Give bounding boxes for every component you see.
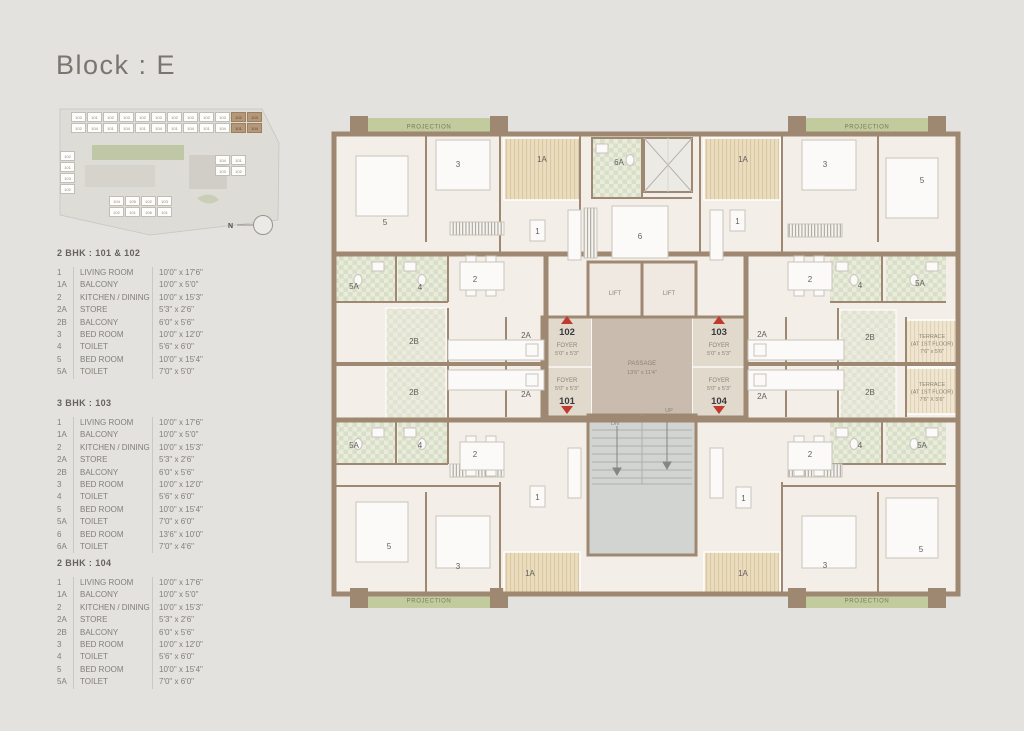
sofa — [568, 210, 581, 260]
keyplan-unit: 104 — [247, 123, 262, 133]
keyplan-unit: 104 — [87, 123, 102, 133]
legend-cell: 10'0" x 15'3" — [152, 442, 203, 454]
floor-plan-page: Block : E N 1031011021031021031021031021… — [0, 0, 1024, 731]
legend-row: 6ATOILET7'0" x 4'6" — [57, 541, 292, 553]
legend-row: 2ASTORE5'3" x 2'6" — [57, 614, 292, 626]
legend-cell: 5A — [57, 516, 73, 528]
stairs-dn-label: DN — [611, 421, 619, 427]
duct-shaft — [644, 138, 692, 192]
keyplan-unit: 102 — [60, 184, 75, 194]
legend-cell: 10'0" x 12'0" — [152, 479, 203, 491]
room-label: 1 — [535, 227, 540, 236]
room-label: 1 — [735, 217, 740, 226]
foyer-label: FOYER — [709, 378, 730, 384]
legend-cell: 5'3" x 2'6" — [152, 454, 194, 466]
legend-row: 3BED ROOM10'0" x 12'0" — [57, 329, 292, 341]
legend-cell: BED ROOM — [73, 329, 152, 341]
north-label: N — [228, 223, 233, 230]
bed — [356, 502, 408, 562]
legend-cell: 3 — [57, 479, 73, 491]
legend-rows: 1LIVING ROOM10'0" x 17'6"1ABALCONY10'0" … — [57, 577, 292, 689]
keyplan-unit: 101 — [60, 162, 75, 172]
keyplan-unit: 104 — [183, 123, 198, 133]
keyplan-unit: 101 — [125, 207, 140, 217]
room-label: 4 — [418, 441, 423, 450]
legend-cell: 10'0" x 15'3" — [152, 292, 203, 304]
room-label: 3 — [823, 160, 828, 169]
legend-cell: STORE — [73, 454, 152, 466]
toilet-5a — [336, 422, 396, 464]
legend-cell: 2B — [57, 627, 73, 639]
keyplan-cluster-left: 102101103102 — [60, 151, 76, 194]
keyplan-unit: 102 — [231, 166, 246, 176]
keyplan-cluster-right: 104101103102 — [215, 155, 249, 176]
passage — [592, 317, 692, 417]
legend-row: 2BBALCONY6'0" x 5'6" — [57, 317, 292, 329]
foyer-size: 5'0" x 5'3" — [555, 386, 579, 392]
room-label: 2B — [409, 388, 419, 397]
legend-cell: TOILET — [73, 651, 152, 663]
legend-cell: 7'0" x 6'0" — [152, 676, 194, 688]
projection-label: PROJECTION — [845, 125, 890, 131]
keyplan-unit: 106 — [141, 207, 156, 217]
keyplan-unit: 104 — [109, 196, 124, 206]
legend-cell: TOILET — [73, 516, 152, 528]
keyplan-unit: 101 — [199, 123, 214, 133]
legend-cell: 13'6" x 10'0" — [152, 529, 203, 541]
legend-row: 5BED ROOM10'0" x 15'4" — [57, 504, 292, 516]
legend-cell: 1 — [57, 417, 73, 429]
legend-cell: 2 — [57, 292, 73, 304]
keyplan-unit: 103 — [247, 112, 262, 122]
legend-cell: 5'6" x 6'0" — [152, 341, 194, 353]
legend-row: 5BED ROOM10'0" x 15'4" — [57, 354, 292, 366]
keyplan-unit: 103 — [151, 112, 166, 122]
legend-cell: BALCONY — [73, 279, 152, 291]
legend-row: 1LIVING ROOM10'0" x 17'6" — [57, 267, 292, 279]
keyplan-unit: 104 — [119, 123, 134, 133]
site-key-plan: N 103101102103102103102103102103102103 1… — [57, 103, 289, 251]
foyer-label: FOYER — [709, 343, 730, 349]
bed — [436, 140, 490, 190]
legend-cell: TOILET — [73, 676, 152, 688]
legend-row: 3BED ROOM10'0" x 12'0" — [57, 639, 292, 651]
legend-cell: 6'0" x 5'6" — [152, 627, 194, 639]
sofa — [710, 448, 723, 498]
unit-number-103: 103 — [711, 327, 727, 338]
legend-cell: 7'0" x 6'0" — [152, 516, 194, 528]
legend-row: 4TOILET5'6" x 6'0" — [57, 651, 292, 663]
legend-cell: KITCHEN / DINING — [73, 292, 152, 304]
keyplan-unit: 103 — [71, 112, 86, 122]
keyplan-unit: 104 — [215, 123, 230, 133]
keyplan-cluster-bottom: 104105102103102101106101 — [109, 196, 175, 217]
legend-row: 5ATOILET7'0" x 6'0" — [57, 516, 292, 528]
floor-plan: PROJECTION PROJECTION PROJECTION PROJECT… — [330, 112, 962, 612]
keyplan-unit: 102 — [71, 123, 86, 133]
foyer-size: 5'0" x 5'3" — [555, 351, 579, 357]
projection-label: PROJECTION — [407, 599, 452, 605]
site-block — [85, 165, 155, 187]
legend-rows: 1LIVING ROOM10'0" x 17'6"1ABALCONY10'0" … — [57, 417, 292, 553]
legend-row: 6BED ROOM13'6" x 10'0" — [57, 529, 292, 541]
room-label: 2A — [757, 330, 767, 339]
legend-title: 2 BHK : 104 — [57, 558, 292, 568]
legend-cell: 10'0" x 17'6" — [152, 577, 203, 589]
legend-cell: 10'0" x 15'4" — [152, 504, 203, 516]
balcony-1a — [504, 552, 580, 594]
page-title: Block : E — [56, 50, 176, 81]
room-label: 5 — [919, 545, 924, 554]
keyplan-unit: 102 — [141, 196, 156, 206]
legend-cell: BED ROOM — [73, 504, 152, 516]
lift-label: LIFT — [663, 291, 676, 297]
room-label: 1A — [537, 155, 547, 164]
legend-cell: BED ROOM — [73, 479, 152, 491]
legend-row: 5ATOILET7'0" x 5'0" — [57, 366, 292, 378]
legend-cell: 6'0" x 5'6" — [152, 467, 194, 479]
legend-cell: BED ROOM — [73, 639, 152, 651]
toilet-5a — [334, 254, 396, 302]
room-label: 6A — [614, 158, 624, 167]
foyer-label: FOYER — [557, 378, 578, 384]
keyplan-unit: 103 — [215, 166, 230, 176]
legend-cell: 10'0" x 5'0" — [152, 589, 198, 601]
room-label: 2 — [473, 275, 478, 284]
room-label: 2A — [757, 392, 767, 401]
legend-cell: 5'3" x 2'6" — [152, 614, 194, 626]
keyplan-unit: 102 — [135, 112, 150, 122]
balcony-1a — [504, 138, 580, 200]
lift-shaft — [588, 262, 642, 317]
legend-cell: 6A — [57, 541, 73, 553]
legend-cell: 5 — [57, 354, 73, 366]
stairs-up-label: UP — [665, 408, 673, 414]
bed — [356, 156, 408, 216]
terrace-floor-note: (AT 1ST FLOOR) — [911, 342, 953, 348]
legend-cell: 2 — [57, 602, 73, 614]
legend-row: 4TOILET5'6" x 6'0" — [57, 491, 292, 503]
room-label: 6 — [638, 232, 643, 241]
keyplan-unit: 101 — [87, 112, 102, 122]
legend-cell: 10'0" x 15'4" — [152, 664, 203, 676]
legend-cell: LIVING ROOM — [73, 267, 152, 279]
room-label: 1 — [741, 494, 746, 503]
room-label: 2B — [865, 333, 875, 342]
staircase — [588, 415, 696, 555]
legend-cell: 4 — [57, 341, 73, 353]
legend-cell: 7'0" x 4'6" — [152, 541, 194, 553]
room-label: 2 — [808, 275, 813, 284]
legend-cell: 5'3" x 2'6" — [152, 304, 194, 316]
legend-row: 1LIVING ROOM10'0" x 17'6" — [57, 577, 292, 589]
room-label: 1A — [738, 569, 748, 578]
legend-row: 3BED ROOM10'0" x 12'0" — [57, 479, 292, 491]
keyplan-unit: 102 — [231, 112, 246, 122]
legend-cell: 10'0" x 12'0" — [152, 639, 203, 651]
legend-cell: TOILET — [73, 491, 152, 503]
keyplan-strip-row1: 103101102103102103102103102103102103 — [71, 112, 262, 122]
legend-row: 2KITCHEN / DINING10'0" x 15'3" — [57, 442, 292, 454]
balcony-2b — [386, 308, 446, 364]
legend-cell: BED ROOM — [73, 529, 152, 541]
legend-cell: 1 — [57, 577, 73, 589]
legend-cell: 10'0" x 12'0" — [152, 329, 203, 341]
legend-cell: 10'0" x 17'6" — [152, 267, 203, 279]
bed — [802, 516, 856, 568]
foyer-size: 5'0" x 5'3" — [707, 351, 731, 357]
terrace-floor-note: (AT 1ST FLOOR) — [911, 390, 953, 396]
legend-cell: BALCONY — [73, 589, 152, 601]
room-label: 2B — [865, 388, 875, 397]
legend-cell: 7'0" x 5'0" — [152, 366, 194, 378]
room-label: 2B — [409, 337, 419, 346]
legend-cell: STORE — [73, 614, 152, 626]
keyplan-unit: 103 — [215, 112, 230, 122]
unit-number-101: 101 — [559, 396, 576, 407]
legend-row: 5ATOILET7'0" x 6'0" — [57, 676, 292, 688]
legend-cell: 5'6" x 6'0" — [152, 491, 194, 503]
passage-size: 13'6" x 11'4" — [627, 370, 657, 376]
legend-row: 1LIVING ROOM10'0" x 17'6" — [57, 417, 292, 429]
keyplan-unit: 104 — [215, 155, 230, 165]
keyplan-unit: 104 — [151, 123, 166, 133]
room-label: 5 — [387, 542, 392, 551]
legend-title: 3 BHK : 103 — [57, 398, 292, 408]
legend-3bhk-103: 3 BHK : 103 1LIVING ROOM10'0" x 17'6"1AB… — [57, 398, 292, 553]
terrace-size: 7'6" x 5'6" — [920, 349, 944, 355]
legend-row: 2KITCHEN / DINING10'0" x 15'3" — [57, 602, 292, 614]
legend-cell: 10'0" x 15'3" — [152, 602, 203, 614]
passage-label: PASSAGE — [628, 361, 656, 367]
legend-cell: KITCHEN / DINING — [73, 442, 152, 454]
legend-2bhk-101-102: 2 BHK : 101 & 102 1LIVING ROOM10'0" x 17… — [57, 248, 292, 379]
legend-row: 1ABALCONY10'0" x 5'0" — [57, 429, 292, 441]
legend-rows: 1LIVING ROOM10'0" x 17'6"1ABALCONY10'0" … — [57, 267, 292, 379]
legend-row: 1ABALCONY10'0" x 5'0" — [57, 279, 292, 291]
room-label: 4 — [858, 281, 863, 290]
keyplan-unit: 103 — [183, 112, 198, 122]
legend-row: 2KITCHEN / DINING10'0" x 15'3" — [57, 292, 292, 304]
lift-label: LIFT — [609, 291, 622, 297]
legend-cell: TOILET — [73, 541, 152, 553]
legend-title: 2 BHK : 101 & 102 — [57, 248, 292, 258]
legend-cell: 4 — [57, 651, 73, 663]
unit-number-102: 102 — [559, 327, 575, 338]
keyplan-unit: 102 — [109, 207, 124, 217]
bed — [436, 516, 490, 568]
legend-row: 2ASTORE5'3" x 2'6" — [57, 304, 292, 316]
sofa — [710, 210, 723, 260]
legend-row: 2BBALCONY6'0" x 5'6" — [57, 467, 292, 479]
keyplan-unit: 105 — [125, 196, 140, 206]
legend-cell: 4 — [57, 491, 73, 503]
legend-cell: 5 — [57, 504, 73, 516]
legend-cell: 3 — [57, 329, 73, 341]
legend-cell: STORE — [73, 304, 152, 316]
legend-cell: BALCONY — [73, 467, 152, 479]
legend-2bhk-104: 2 BHK : 104 1LIVING ROOM10'0" x 17'6"1AB… — [57, 558, 292, 689]
keyplan-unit: 102 — [167, 112, 182, 122]
legend-cell: 3 — [57, 639, 73, 651]
legend-cell: 2A — [57, 304, 73, 316]
foyer-label: FOYER — [557, 343, 578, 349]
legend-cell: 5A — [57, 676, 73, 688]
legend-cell: 6'0" x 5'6" — [152, 317, 194, 329]
legend-row: 2BBALCONY6'0" x 5'6" — [57, 627, 292, 639]
legend-cell: 5A — [57, 366, 73, 378]
projection-label: PROJECTION — [407, 125, 452, 131]
legend-cell: BED ROOM — [73, 354, 152, 366]
bed — [886, 498, 938, 558]
legend-cell: KITCHEN / DINING — [73, 602, 152, 614]
legend-cell: 6 — [57, 529, 73, 541]
terrace-size: 7'6" X 5'6" — [920, 397, 945, 403]
room-label: 5 — [920, 176, 925, 185]
legend-cell: 1A — [57, 279, 73, 291]
wardrobe — [788, 224, 842, 237]
room-label: 2A — [521, 390, 531, 399]
room-label: 3 — [823, 561, 828, 570]
foyer-size: 5'0" x 5'3" — [707, 386, 731, 392]
legend-cell: 10'0" x 5'0" — [152, 429, 198, 441]
sofa — [568, 448, 581, 498]
legend-row: 4TOILET5'6" x 6'0" — [57, 341, 292, 353]
wardrobe — [450, 222, 504, 235]
legend-cell: BALCONY — [73, 429, 152, 441]
legend-cell: BALCONY — [73, 317, 152, 329]
legend-cell: 5 — [57, 664, 73, 676]
room-label: 4 — [418, 283, 423, 292]
room-label: 3 — [456, 562, 461, 571]
room-label: 2 — [473, 450, 478, 459]
north-circle — [254, 216, 273, 235]
keyplan-unit: 101 — [103, 123, 118, 133]
site-green-area — [92, 145, 184, 160]
room-label: 2 — [808, 450, 813, 459]
terrace-label: TERRACE — [919, 334, 946, 340]
legend-cell: 5'6" x 6'0" — [152, 651, 194, 663]
room-label: 5A — [349, 441, 359, 450]
bed — [802, 140, 856, 190]
keyplan-unit: 102 — [103, 112, 118, 122]
legend-cell: 10'0" x 15'4" — [152, 354, 203, 366]
keyplan-unit: 101 — [135, 123, 150, 133]
legend-cell: BED ROOM — [73, 664, 152, 676]
keyplan-unit: 102 — [199, 112, 214, 122]
keyplan-unit: 102 — [60, 151, 75, 161]
legend-cell: 2B — [57, 317, 73, 329]
room-label: 5 — [383, 218, 388, 227]
keyplan-unit: 103 — [119, 112, 134, 122]
projection-label: PROJECTION — [845, 599, 890, 605]
legend-cell: 1A — [57, 429, 73, 441]
legend-row: 1ABALCONY10'0" x 5'0" — [57, 589, 292, 601]
legend-cell: 10'0" x 17'6" — [152, 417, 203, 429]
keyplan-unit: 101 — [231, 155, 246, 165]
room-label: 5A — [917, 441, 927, 450]
legend-cell: 1A — [57, 589, 73, 601]
keyplan-unit: 101 — [167, 123, 182, 133]
legend-cell: LIVING ROOM — [73, 577, 152, 589]
room-label: 1 — [535, 493, 540, 502]
balcony-1a — [704, 138, 780, 200]
legend-cell: 2B — [57, 467, 73, 479]
keyplan-strip-row2: 102104101104101104101104101104101104 — [71, 123, 262, 133]
room-label: 5A — [915, 279, 925, 288]
keyplan-unit: 103 — [60, 173, 75, 183]
legend-cell: TOILET — [73, 366, 152, 378]
legend-cell: 2 — [57, 442, 73, 454]
terrace-label: TERRACE — [919, 382, 946, 388]
legend-cell: 2A — [57, 454, 73, 466]
legend-cell: TOILET — [73, 341, 152, 353]
room-label: 3 — [456, 160, 461, 169]
legend-cell: LIVING ROOM — [73, 417, 152, 429]
bed — [886, 158, 938, 218]
keyplan-unit: 101 — [231, 123, 246, 133]
room-label: 5A — [349, 282, 359, 291]
room-label: 1A — [525, 569, 535, 578]
room-label: 1A — [738, 155, 748, 164]
legend-cell: 10'0" x 5'0" — [152, 279, 198, 291]
legend-row: 5BED ROOM10'0" x 15'4" — [57, 664, 292, 676]
keyplan-unit: 101 — [157, 207, 172, 217]
wardrobe — [584, 208, 597, 258]
legend-cell: 1 — [57, 267, 73, 279]
legend-row: 2ASTORE5'3" x 2'6" — [57, 454, 292, 466]
lift-shaft — [642, 262, 696, 317]
room-label: 4 — [858, 441, 863, 450]
keyplan-unit: 103 — [157, 196, 172, 206]
legend-cell: 2A — [57, 614, 73, 626]
room-label: 2A — [521, 331, 531, 340]
legend-cell: BALCONY — [73, 627, 152, 639]
unit-number-104: 104 — [711, 396, 728, 407]
